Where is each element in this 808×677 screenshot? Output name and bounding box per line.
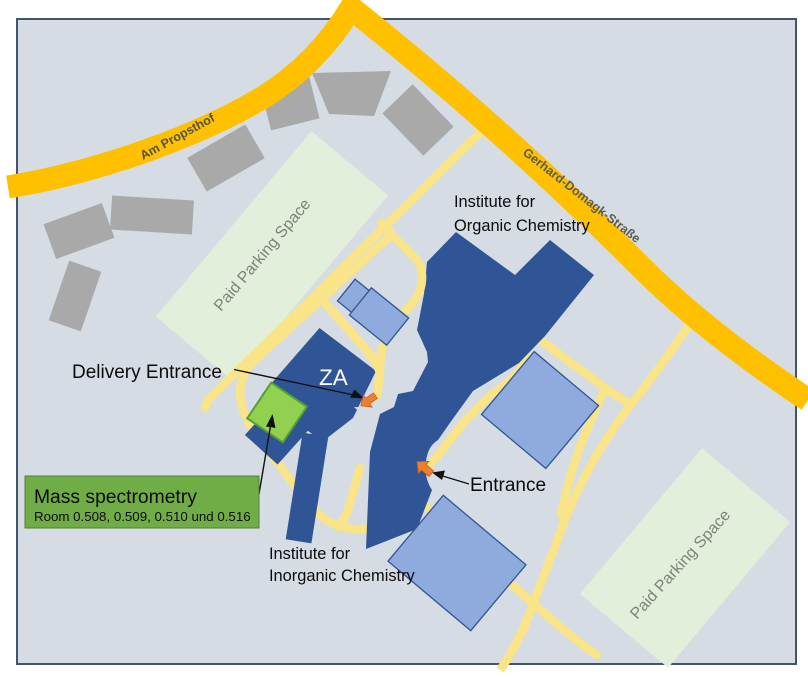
svg-text:Room 0.508, 0.509, 0.510 und 0: Room 0.508, 0.509, 0.510 und 0.516 [34,509,251,524]
svg-text:Organic Chemistry: Organic Chemistry [454,217,591,235]
svg-text:ZA: ZA [319,365,348,390]
svg-text:Delivery Entrance: Delivery Entrance [72,362,222,383]
svg-text:Inorganic Chemistry: Inorganic Chemistry [269,567,416,585]
svg-text:Institute for: Institute for [454,193,536,211]
svg-text:Institute for: Institute for [269,545,351,563]
svg-text:Mass spectrometry: Mass spectrometry [34,487,197,508]
svg-text:Entrance: Entrance [470,475,546,496]
